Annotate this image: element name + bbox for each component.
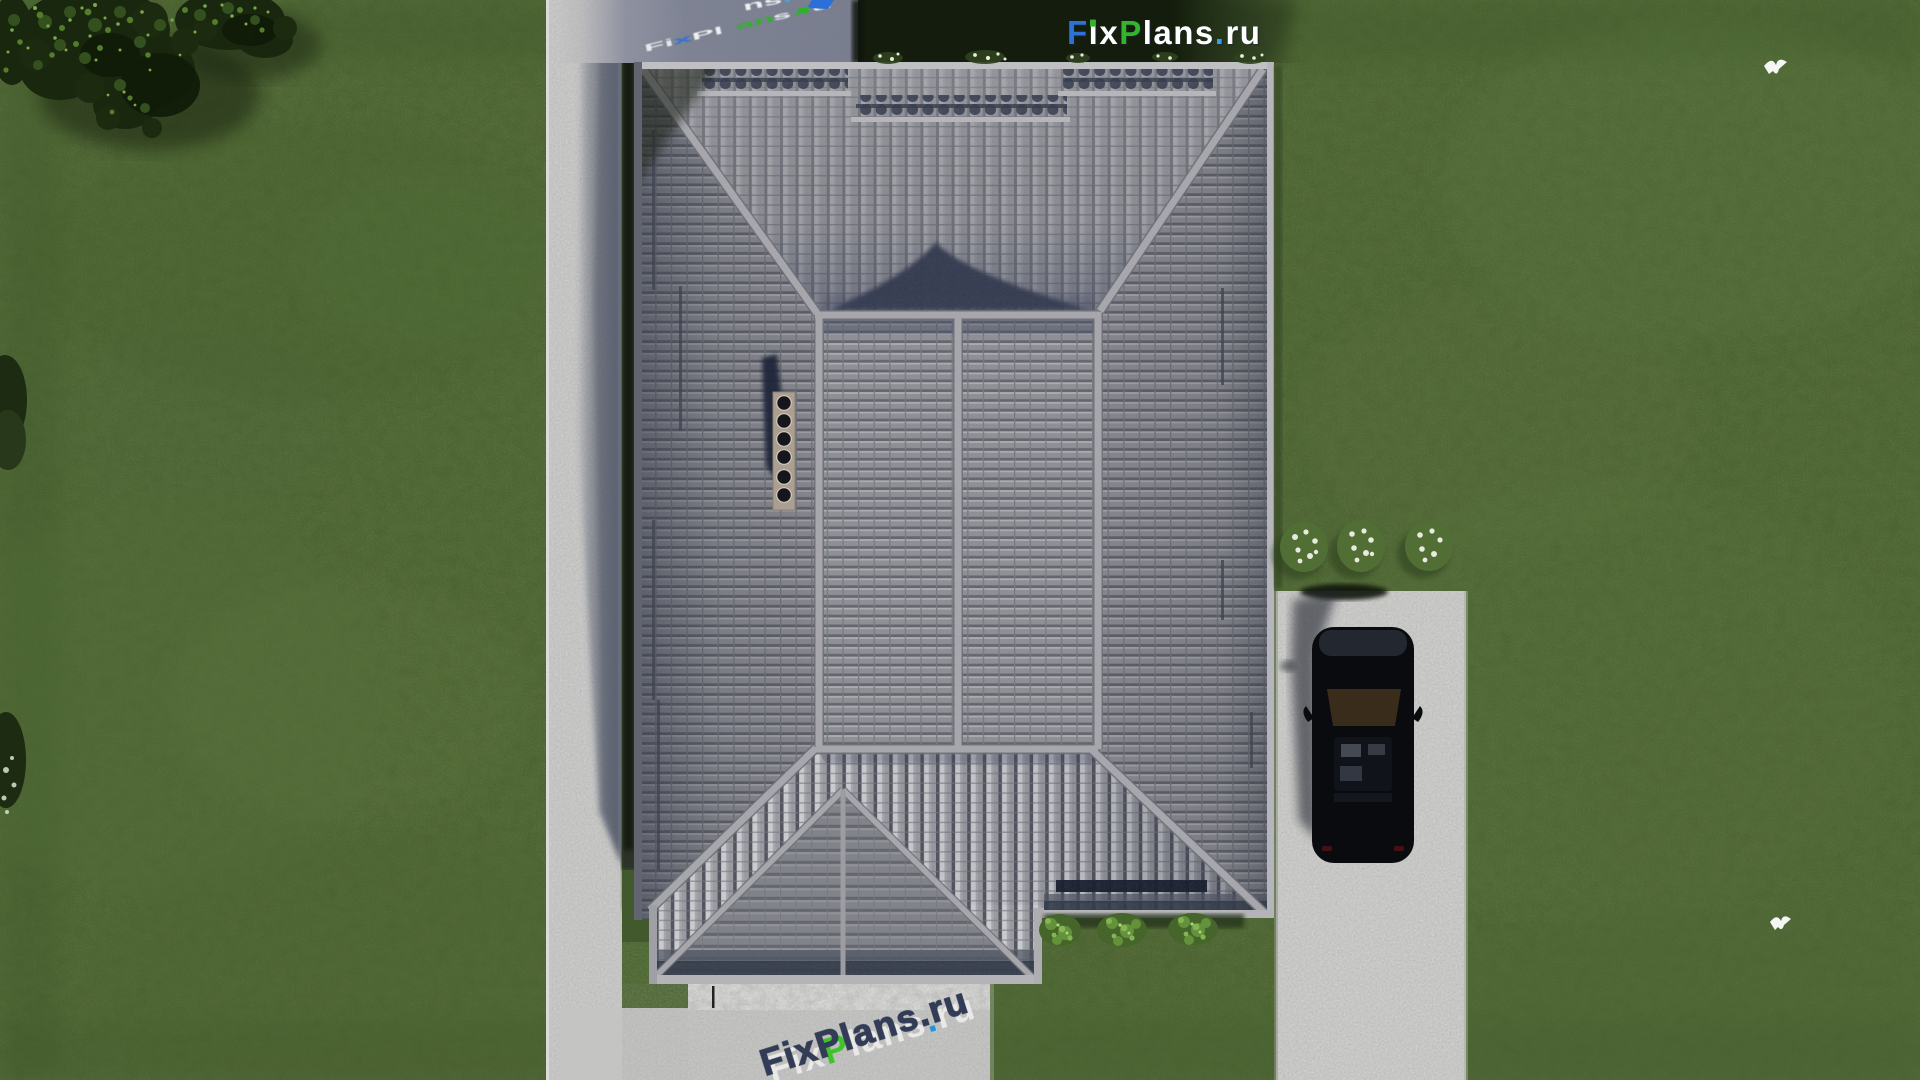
svg-text:FixPlans.ru: FixPlans.ru: [1067, 14, 1261, 51]
